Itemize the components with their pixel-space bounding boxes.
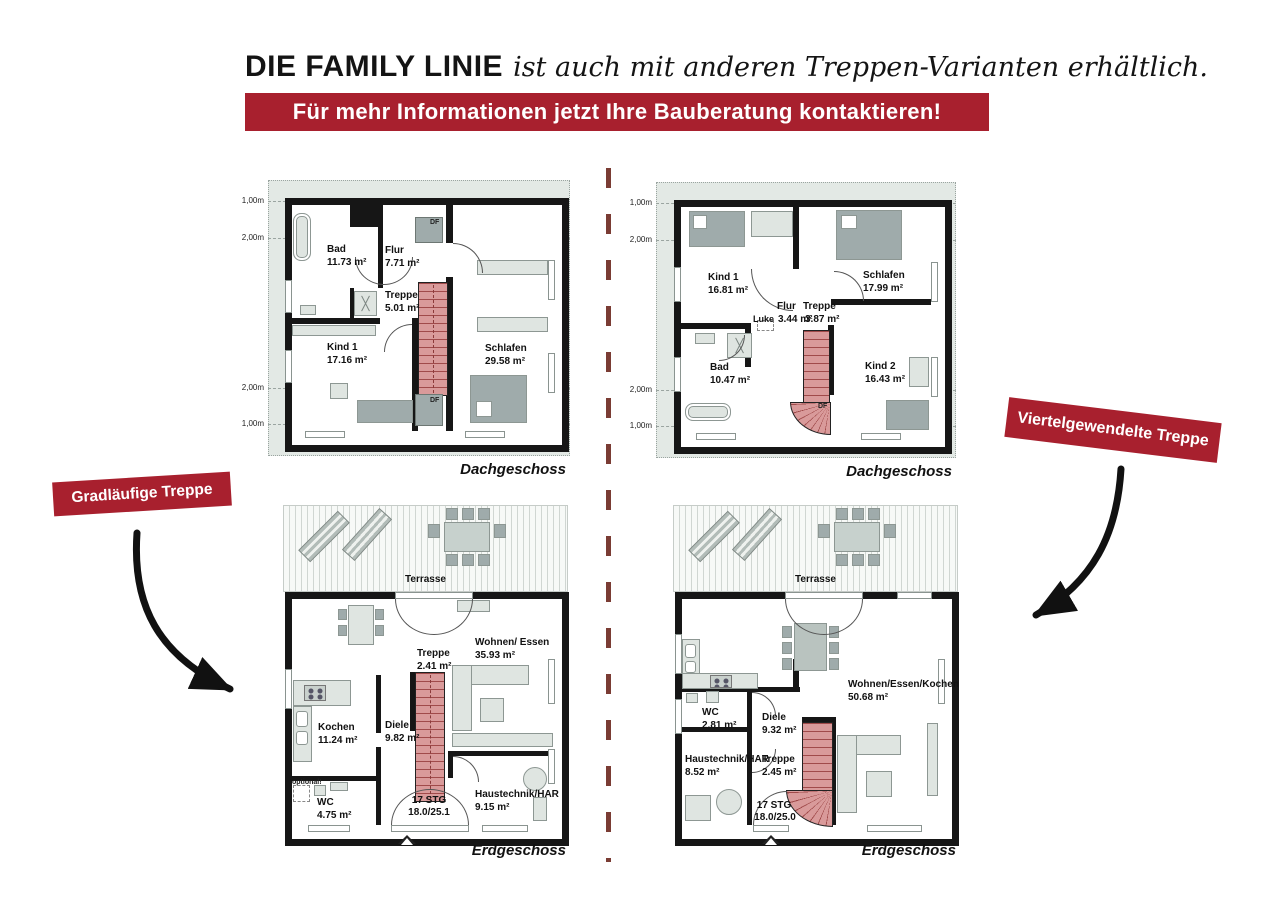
room-name: WC: [702, 706, 736, 719]
room-name: Wohnen/Essen/Kochen: [848, 678, 959, 691]
door-arc: [834, 271, 864, 301]
terrace-table: [444, 522, 490, 552]
room-area: 16.81 m²: [708, 284, 748, 297]
stair-walkline: [430, 675, 431, 799]
right-arrow: [1036, 469, 1121, 615]
terrace-chair: [884, 524, 896, 538]
house-outline: WC 2.81 m² Diele 9.32 m² Wohnen/Essen/Ko…: [675, 592, 959, 846]
plan-dachgeschoss-left: 1,00m 2,00m 2,00m 1,00m DF DF ╳: [268, 180, 570, 456]
door-opening: [395, 592, 473, 599]
sun-lounger: [298, 511, 350, 563]
window: [285, 350, 292, 383]
chair: [782, 642, 792, 654]
pillow: [476, 401, 492, 417]
terrace-label: Terrasse: [674, 574, 957, 585]
dim-label: 2,00m: [624, 385, 652, 394]
room-area: 9.82 m²: [385, 732, 419, 745]
room-name: Kind 1: [708, 271, 748, 284]
room-name: Wohnen/ Essen: [475, 636, 549, 649]
room-label-wohnen: Wohnen/ Essen 35.93 m²: [475, 636, 549, 662]
terrace-chair: [478, 554, 490, 566]
room-area: 17.99 m²: [863, 282, 905, 295]
window: [674, 267, 681, 302]
room-area: 50.68 m²: [848, 691, 959, 704]
chair: [782, 626, 792, 638]
dim-label: 1,00m: [624, 198, 652, 207]
wc-sink: [686, 693, 698, 703]
corner-sofa: [452, 665, 472, 731]
room-label-flur: Flur: [777, 300, 796, 313]
room-area: 5.01 m²: [385, 302, 419, 315]
terrace-door-arc: [824, 599, 863, 635]
room-area: 9.15 m²: [475, 801, 559, 814]
terrace-chair: [836, 508, 848, 520]
room-label-wc: WC 4.75 m²: [317, 796, 351, 822]
window: [867, 825, 922, 832]
window: [548, 260, 555, 300]
room-label-diele: Diele 9.32 m²: [762, 711, 796, 737]
room-area: 8.52 m²: [685, 766, 769, 779]
terrace-chair: [446, 508, 458, 520]
wall: [350, 205, 378, 227]
door-arc: [453, 243, 483, 273]
kitchen-sink: [685, 661, 696, 673]
cooktop: [304, 685, 326, 701]
chair: [375, 609, 384, 620]
chair: [782, 658, 792, 670]
pillow: [693, 215, 707, 229]
terrace-chair: [868, 554, 880, 566]
dim-label: 1,00m: [236, 419, 264, 428]
room-label-bad: Bad 11.73 m²: [327, 243, 366, 269]
room-label-diele: Diele 9.82 m²: [385, 719, 419, 745]
desk: [330, 383, 348, 399]
plan-erdgeschoss-left: Terrasse: [283, 505, 568, 855]
room-area: 2.45 m²: [762, 766, 796, 779]
entrance-marker-inner: [765, 838, 777, 845]
terrace-chair: [836, 554, 848, 566]
dining-table: [348, 605, 374, 645]
left-arrow: [136, 533, 230, 689]
pillow: [841, 215, 857, 229]
window: [482, 825, 528, 832]
dashed-divider: [606, 168, 611, 862]
terrace: Terrasse: [283, 505, 568, 592]
chair: [338, 625, 347, 636]
plan-dachgeschoss-right: 1,00m 2,00m 2,00m 1,00m DF ╳: [656, 182, 956, 458]
room-area: 11.24 m²: [318, 734, 357, 747]
entrance-marker: [398, 835, 416, 844]
room-name: Diele: [385, 719, 419, 732]
room-label-wc: WC 2.81 m²: [702, 706, 736, 732]
brand-tagline: ist auch mit anderen Treppen-Varianten e…: [513, 52, 1208, 83]
room-label-treppe: Treppe 2.41 m²: [417, 647, 451, 673]
entrance-marker: [762, 835, 780, 844]
stair-ratio-label: 18.0/25.0: [744, 811, 806, 824]
sun-lounger: [688, 511, 740, 563]
terrace-chair: [868, 508, 880, 520]
skylight-label: DF: [430, 397, 439, 404]
room-label-treppe: Treppe 2.45 m²: [762, 753, 796, 779]
dim-label: 1,00m: [624, 421, 652, 430]
room-label-kind1: Kind 1 17.16 m²: [327, 341, 367, 367]
room-label-bad: Bad 10.47 m²: [710, 361, 750, 387]
stair-ratio-label: 18.0/25.1: [399, 806, 459, 819]
terrace-chair: [462, 508, 474, 520]
window: [465, 431, 505, 438]
terrace-chair: [494, 524, 506, 538]
wall: [448, 751, 548, 756]
annotation-arrows: [0, 0, 1280, 905]
window: [931, 357, 938, 397]
terrace: Terrasse: [673, 505, 958, 592]
room-label-flur: Flur 7.71 m²: [385, 244, 419, 270]
window: [548, 749, 555, 784]
skylight-label: DF: [430, 219, 439, 226]
room-name: Kind 1: [327, 341, 367, 354]
room-area: 17.16 m²: [327, 354, 367, 367]
room-name: WC: [317, 796, 351, 809]
optional-washer: [293, 785, 310, 802]
plan-erdgeschoss-right: Terrasse: [673, 505, 958, 855]
optional-label: optional!: [292, 779, 322, 786]
room-area: 11.73 m²: [327, 256, 366, 269]
room-label-schlafen: Schlafen 29.58 m²: [485, 342, 527, 368]
room-name: Treppe: [385, 289, 419, 302]
coffee-table: [866, 771, 892, 797]
window: [548, 659, 555, 704]
wardrobe: [477, 317, 548, 332]
stair-walkline: [433, 285, 434, 393]
room-name: Kochen: [318, 721, 357, 734]
window: [931, 262, 938, 302]
window: [674, 357, 681, 392]
room-name: Treppe: [762, 753, 796, 766]
kitchen-sink: [296, 731, 308, 745]
window: [696, 433, 736, 440]
room-label-haustechnik: Haustechnik/HAR 9.15 m²: [475, 788, 559, 814]
entrance-marker-inner: [401, 838, 413, 845]
window: [861, 433, 901, 440]
sun-lounger: [732, 508, 782, 561]
floor-label: Erdgeschoss: [472, 842, 566, 859]
room-label-kind1: Kind 1 16.81 m²: [708, 271, 748, 297]
wall: [376, 781, 381, 825]
room-area: 4.75 m²: [317, 809, 351, 822]
wc-sink: [314, 785, 326, 796]
staircase-straight: [803, 330, 830, 404]
wall: [793, 207, 799, 269]
terrace-door-arc: [434, 599, 473, 635]
door-arc: [384, 324, 412, 352]
room-name: Bad: [710, 361, 750, 374]
dim-label: 2,00m: [624, 235, 652, 244]
shower: ╳: [354, 291, 377, 316]
terrace-chair: [462, 554, 474, 566]
room-name: Haustechnik/HAR: [685, 753, 769, 766]
dim-label: 1,00m: [236, 196, 264, 205]
chair: [375, 625, 384, 636]
lowboard: [452, 733, 553, 747]
door-opening: [391, 825, 469, 832]
staircase-straight: [415, 672, 445, 802]
room-area: 10.47 m²: [710, 374, 750, 387]
window: [285, 669, 292, 709]
terrace-chair: [446, 554, 458, 566]
wall: [681, 323, 751, 329]
terrace-table: [834, 522, 880, 552]
badge-straight-stair: Gradläufige Treppe: [52, 472, 232, 517]
shelf: [292, 325, 376, 336]
info-banner: Für mehr Informationen jetzt Ihre Bauber…: [245, 93, 989, 131]
house-outline: DF ╳ Kind 1 16.81 m² Schlafen 17.99 m²: [674, 200, 952, 454]
staircase-straight: [418, 282, 448, 396]
room-name: Flur: [385, 244, 419, 257]
room-name: Treppe: [417, 647, 451, 660]
corner-sofa: [837, 735, 857, 813]
terrace-label: Terrasse: [284, 574, 567, 585]
wardrobe: [477, 260, 548, 275]
sun-lounger: [342, 508, 392, 561]
kitchen-sink: [685, 644, 696, 658]
wall: [376, 747, 381, 777]
window: [675, 634, 682, 674]
dim-label: 2,00m: [236, 383, 264, 392]
room-area: 2.81 m²: [702, 719, 736, 732]
window: [285, 280, 292, 313]
window: [308, 825, 350, 832]
floor-label: Erdgeschoss: [862, 842, 956, 859]
chair: [338, 609, 347, 620]
wc-cabinet: [330, 782, 348, 791]
coffee-table: [480, 698, 504, 722]
wall: [376, 675, 381, 733]
bathtub: [685, 403, 731, 421]
door-opening: [753, 825, 789, 832]
badge-quarter-turn-stair: Viertelgewendelte Treppe: [1004, 397, 1221, 463]
wc-toilet: [706, 691, 719, 703]
room-name: Diele: [762, 711, 796, 724]
chair: [829, 642, 839, 654]
terrace-chair: [852, 554, 864, 566]
page-title: DIE FAMILY LINIEist auch mit anderen Tre…: [245, 50, 1208, 84]
door-arc: [453, 756, 479, 782]
sideboard: [927, 723, 938, 796]
room-name: Haustechnik/HAR: [475, 788, 559, 801]
room-area: 29.58 m²: [485, 355, 527, 368]
skylight-label: DF: [818, 403, 827, 410]
floor-label: Dachgeschoss: [460, 461, 566, 478]
house-outline: Treppe 2.41 m² Wohnen/ Essen 35.93 m² Ko…: [285, 592, 569, 846]
window: [675, 699, 682, 734]
house-outline: DF DF ╳ Bad 11.73 m² Flur 7.71 m²: [285, 198, 569, 452]
room-name: Kind 2: [865, 360, 905, 373]
wall: [446, 205, 453, 243]
dresser: [909, 357, 929, 387]
room-label-wohnen: Wohnen/Essen/Kochen 50.68 m²: [848, 678, 959, 704]
room-area: 2.41 m²: [417, 660, 451, 673]
door-opening: [785, 592, 863, 599]
staircase-straight: [802, 722, 833, 794]
room-area: 7.71 m²: [385, 257, 419, 270]
brand-title: DIE FAMILY LINIE: [245, 50, 503, 83]
terrace-chair: [852, 508, 864, 520]
floor-label: Dachgeschoss: [846, 463, 952, 480]
sink: [695, 333, 715, 344]
room-label-haustechnik: Haustechnik/HAR 8.52 m²: [685, 753, 769, 779]
room-label-kind2: Kind 2 16.43 m²: [865, 360, 905, 386]
dim-label: 2,00m: [236, 233, 264, 242]
cooktop: [710, 675, 732, 688]
room-label-treppe: Treppe 5.01 m²: [385, 289, 419, 315]
kitchen-sink: [296, 711, 308, 727]
room-name: Schlafen: [863, 269, 905, 282]
window: [548, 353, 555, 393]
room-name: Schlafen: [485, 342, 527, 355]
room-area: 9.32 m²: [762, 724, 796, 737]
terrace-chair: [478, 508, 490, 520]
cabinet: [685, 795, 711, 821]
wardrobe: [751, 211, 793, 237]
room-label-kochen: Kochen 11.24 m²: [318, 721, 357, 747]
room-area: 16.43 m²: [865, 373, 905, 386]
window: [305, 431, 345, 438]
bed: [886, 400, 929, 430]
wall: [292, 318, 380, 324]
room-area: 35.93 m²: [475, 649, 549, 662]
terrace-chair: [428, 524, 440, 538]
room-name: Bad: [327, 243, 366, 256]
chair: [829, 658, 839, 670]
window: [897, 592, 932, 599]
bathtub: [293, 213, 311, 261]
round-table: [716, 789, 742, 815]
terrace-chair: [818, 524, 830, 538]
bed: [357, 400, 413, 423]
room-label-schlafen: Schlafen 17.99 m²: [863, 269, 905, 295]
room-area-treppe: 3.87 m²: [805, 313, 839, 326]
terrace-door-arc: [395, 599, 434, 635]
luke-label: Luke: [753, 313, 774, 326]
room-label-treppe: Treppe: [803, 300, 836, 313]
sink: [300, 305, 316, 315]
